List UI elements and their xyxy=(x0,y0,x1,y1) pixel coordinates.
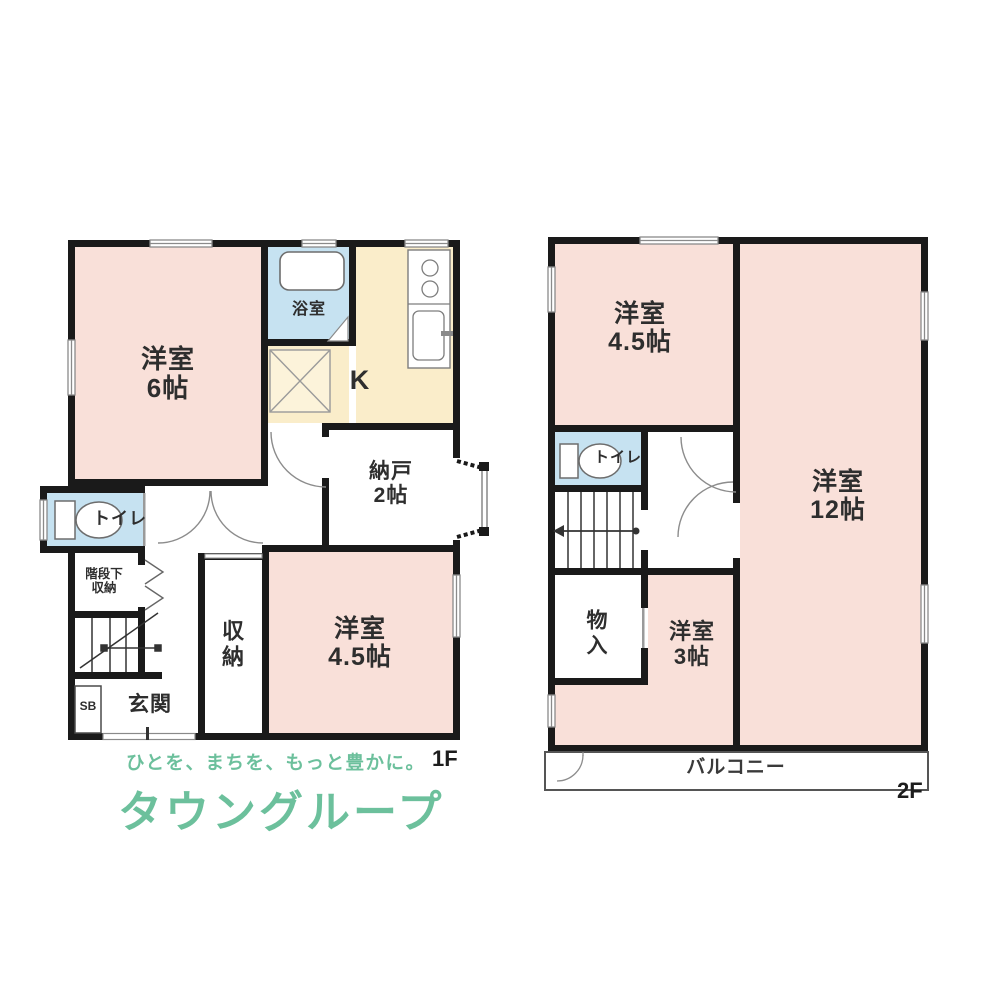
bay-window xyxy=(457,461,489,537)
room-label-1f-under-stair-storage: 階段下 収納 xyxy=(71,567,137,595)
room-label-1f-shoebox: SB xyxy=(76,700,100,713)
room-label-2f-closet: 物入 xyxy=(585,594,606,674)
kitchen-counter-icon xyxy=(408,250,453,368)
room-label-2f-yoshitsu3: 洋室 3帖 xyxy=(653,620,731,669)
brand-tagline: ひとを、まちを、もっと豊かに。 xyxy=(126,749,425,775)
room-label-2f-yoshitsu45: 洋室 4.5帖 xyxy=(580,300,700,356)
floor1-tag: 1F xyxy=(432,746,458,772)
floor2-door-arcs xyxy=(678,437,736,537)
room-label-1f-storage: 収納 xyxy=(220,603,242,687)
floor2-tag: 2F xyxy=(897,778,923,804)
room-label-2f-toilet: トイレ xyxy=(590,450,646,467)
entrance-door xyxy=(103,727,195,740)
room-label-1f-entrance: 玄関 xyxy=(118,693,182,717)
room-2f-yoshitsu3b xyxy=(555,685,733,745)
bathtub-icon xyxy=(280,252,344,290)
room-label-1f-kitchen: K xyxy=(345,365,375,395)
logo-square-text: TOWN GROUP xyxy=(12,822,95,834)
room-label-2f-balcony: バルコニー xyxy=(640,757,832,778)
room-label-2f-yoshitsu12: 洋室 12帖 xyxy=(780,468,896,524)
room-label-1f-yoshitsu45: 洋室 4.5帖 xyxy=(300,615,420,671)
tree-icon xyxy=(22,755,86,825)
closet-door-line xyxy=(642,608,645,648)
room-label-1f-bathroom: 浴室 xyxy=(277,301,341,319)
room-label-1f-toilet: トイレ xyxy=(93,509,145,528)
stairs-2f-icon xyxy=(553,492,640,568)
room-label-1f-nando: 納戸 2帖 xyxy=(350,460,432,507)
room-label-1f-yoshitsu6: 洋室 6帖 xyxy=(108,345,228,403)
stairs-1f-icon xyxy=(80,613,161,672)
laundry-space-icon xyxy=(270,350,330,412)
town-group-logo: TOWN GROUP xyxy=(12,755,95,834)
brand-company-name: タウングループ xyxy=(118,776,444,840)
floorplan-page: TOWN GROUP 洋室 6帖 浴室 K 納戸 2帖 トイレ 階段下 収納 収… xyxy=(0,0,1000,999)
